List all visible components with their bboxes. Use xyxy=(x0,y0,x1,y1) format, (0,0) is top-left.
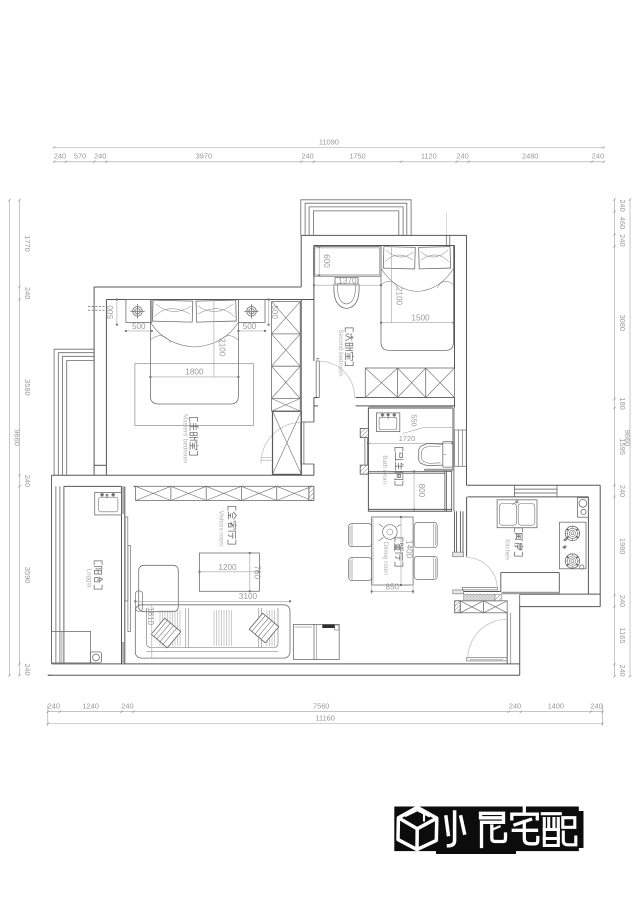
svg-text:1200: 1200 xyxy=(218,563,237,572)
svg-text:Kitchen: Kitchen xyxy=(503,539,510,560)
svg-text:600: 600 xyxy=(322,254,331,268)
svg-text:240: 240 xyxy=(48,702,60,711)
svg-text:2100: 2100 xyxy=(217,338,226,357)
svg-text:1240: 1240 xyxy=(82,702,98,711)
svg-text:3080: 3080 xyxy=(618,315,627,331)
svg-text:1800: 1800 xyxy=(185,368,204,377)
svg-text:240: 240 xyxy=(618,485,627,497)
svg-text:240: 240 xyxy=(23,475,32,487)
svg-text:180: 180 xyxy=(618,397,627,409)
svg-text:240: 240 xyxy=(590,702,602,711)
svg-text:1770: 1770 xyxy=(23,235,32,251)
svg-text:3970: 3970 xyxy=(196,152,212,161)
svg-text:500: 500 xyxy=(270,305,279,319)
svg-text:Visitors room: Visitors room xyxy=(218,511,225,547)
svg-text:1750: 1750 xyxy=(349,152,365,161)
svg-text:240: 240 xyxy=(54,152,66,161)
svg-text:1400: 1400 xyxy=(548,702,564,711)
svg-text:1165: 1165 xyxy=(618,628,627,644)
svg-text:550: 550 xyxy=(410,414,419,426)
svg-text:240: 240 xyxy=(618,664,627,676)
svg-text:1720: 1720 xyxy=(399,434,415,443)
svg-text:500: 500 xyxy=(132,322,146,331)
svg-text:240: 240 xyxy=(23,287,32,299)
svg-text:240: 240 xyxy=(301,152,313,161)
svg-text:240: 240 xyxy=(592,152,604,161)
svg-text:1810: 1810 xyxy=(146,607,155,626)
svg-text:3100: 3100 xyxy=(239,592,258,601)
svg-text:Loggia: Loggia xyxy=(86,569,93,588)
svg-text:760: 760 xyxy=(253,565,262,579)
svg-text:240: 240 xyxy=(456,152,468,161)
svg-text:Second bedroom: Second bedroom xyxy=(337,329,344,376)
svg-text:1370: 1370 xyxy=(338,276,357,285)
svg-text:240: 240 xyxy=(618,234,627,246)
svg-text:1980: 1980 xyxy=(618,538,627,554)
svg-text:Dining room: Dining room xyxy=(382,542,389,575)
svg-text:240: 240 xyxy=(618,595,627,607)
svg-text:570: 570 xyxy=(74,152,86,161)
svg-text:7560: 7560 xyxy=(313,702,329,711)
svg-text:Bath room: Bath room xyxy=(381,455,388,484)
svg-text:240: 240 xyxy=(94,152,106,161)
svg-text:11160: 11160 xyxy=(315,713,334,722)
svg-text:240: 240 xyxy=(618,199,627,211)
svg-text:11090: 11090 xyxy=(319,137,339,146)
svg-text:240: 240 xyxy=(509,702,521,711)
svg-text:1120: 1120 xyxy=(421,152,437,161)
svg-text:3580: 3580 xyxy=(23,379,32,395)
svg-text:240: 240 xyxy=(121,702,133,711)
svg-text:3590: 3590 xyxy=(23,567,32,583)
svg-text:240: 240 xyxy=(23,663,32,675)
svg-text:9660: 9660 xyxy=(623,430,632,446)
svg-text:460: 460 xyxy=(618,217,627,229)
svg-text:Masters' bedroom: Masters' bedroom xyxy=(182,414,189,463)
svg-text:800: 800 xyxy=(417,484,426,498)
svg-text:850: 850 xyxy=(385,583,399,592)
svg-text:500: 500 xyxy=(106,305,115,319)
svg-text:1500: 1500 xyxy=(411,314,430,323)
svg-text:2480: 2480 xyxy=(522,152,538,161)
svg-text:500: 500 xyxy=(243,322,257,331)
svg-text:9660: 9660 xyxy=(12,429,21,445)
svg-text:1400: 1400 xyxy=(404,540,413,559)
svg-text:2100: 2100 xyxy=(395,287,404,306)
